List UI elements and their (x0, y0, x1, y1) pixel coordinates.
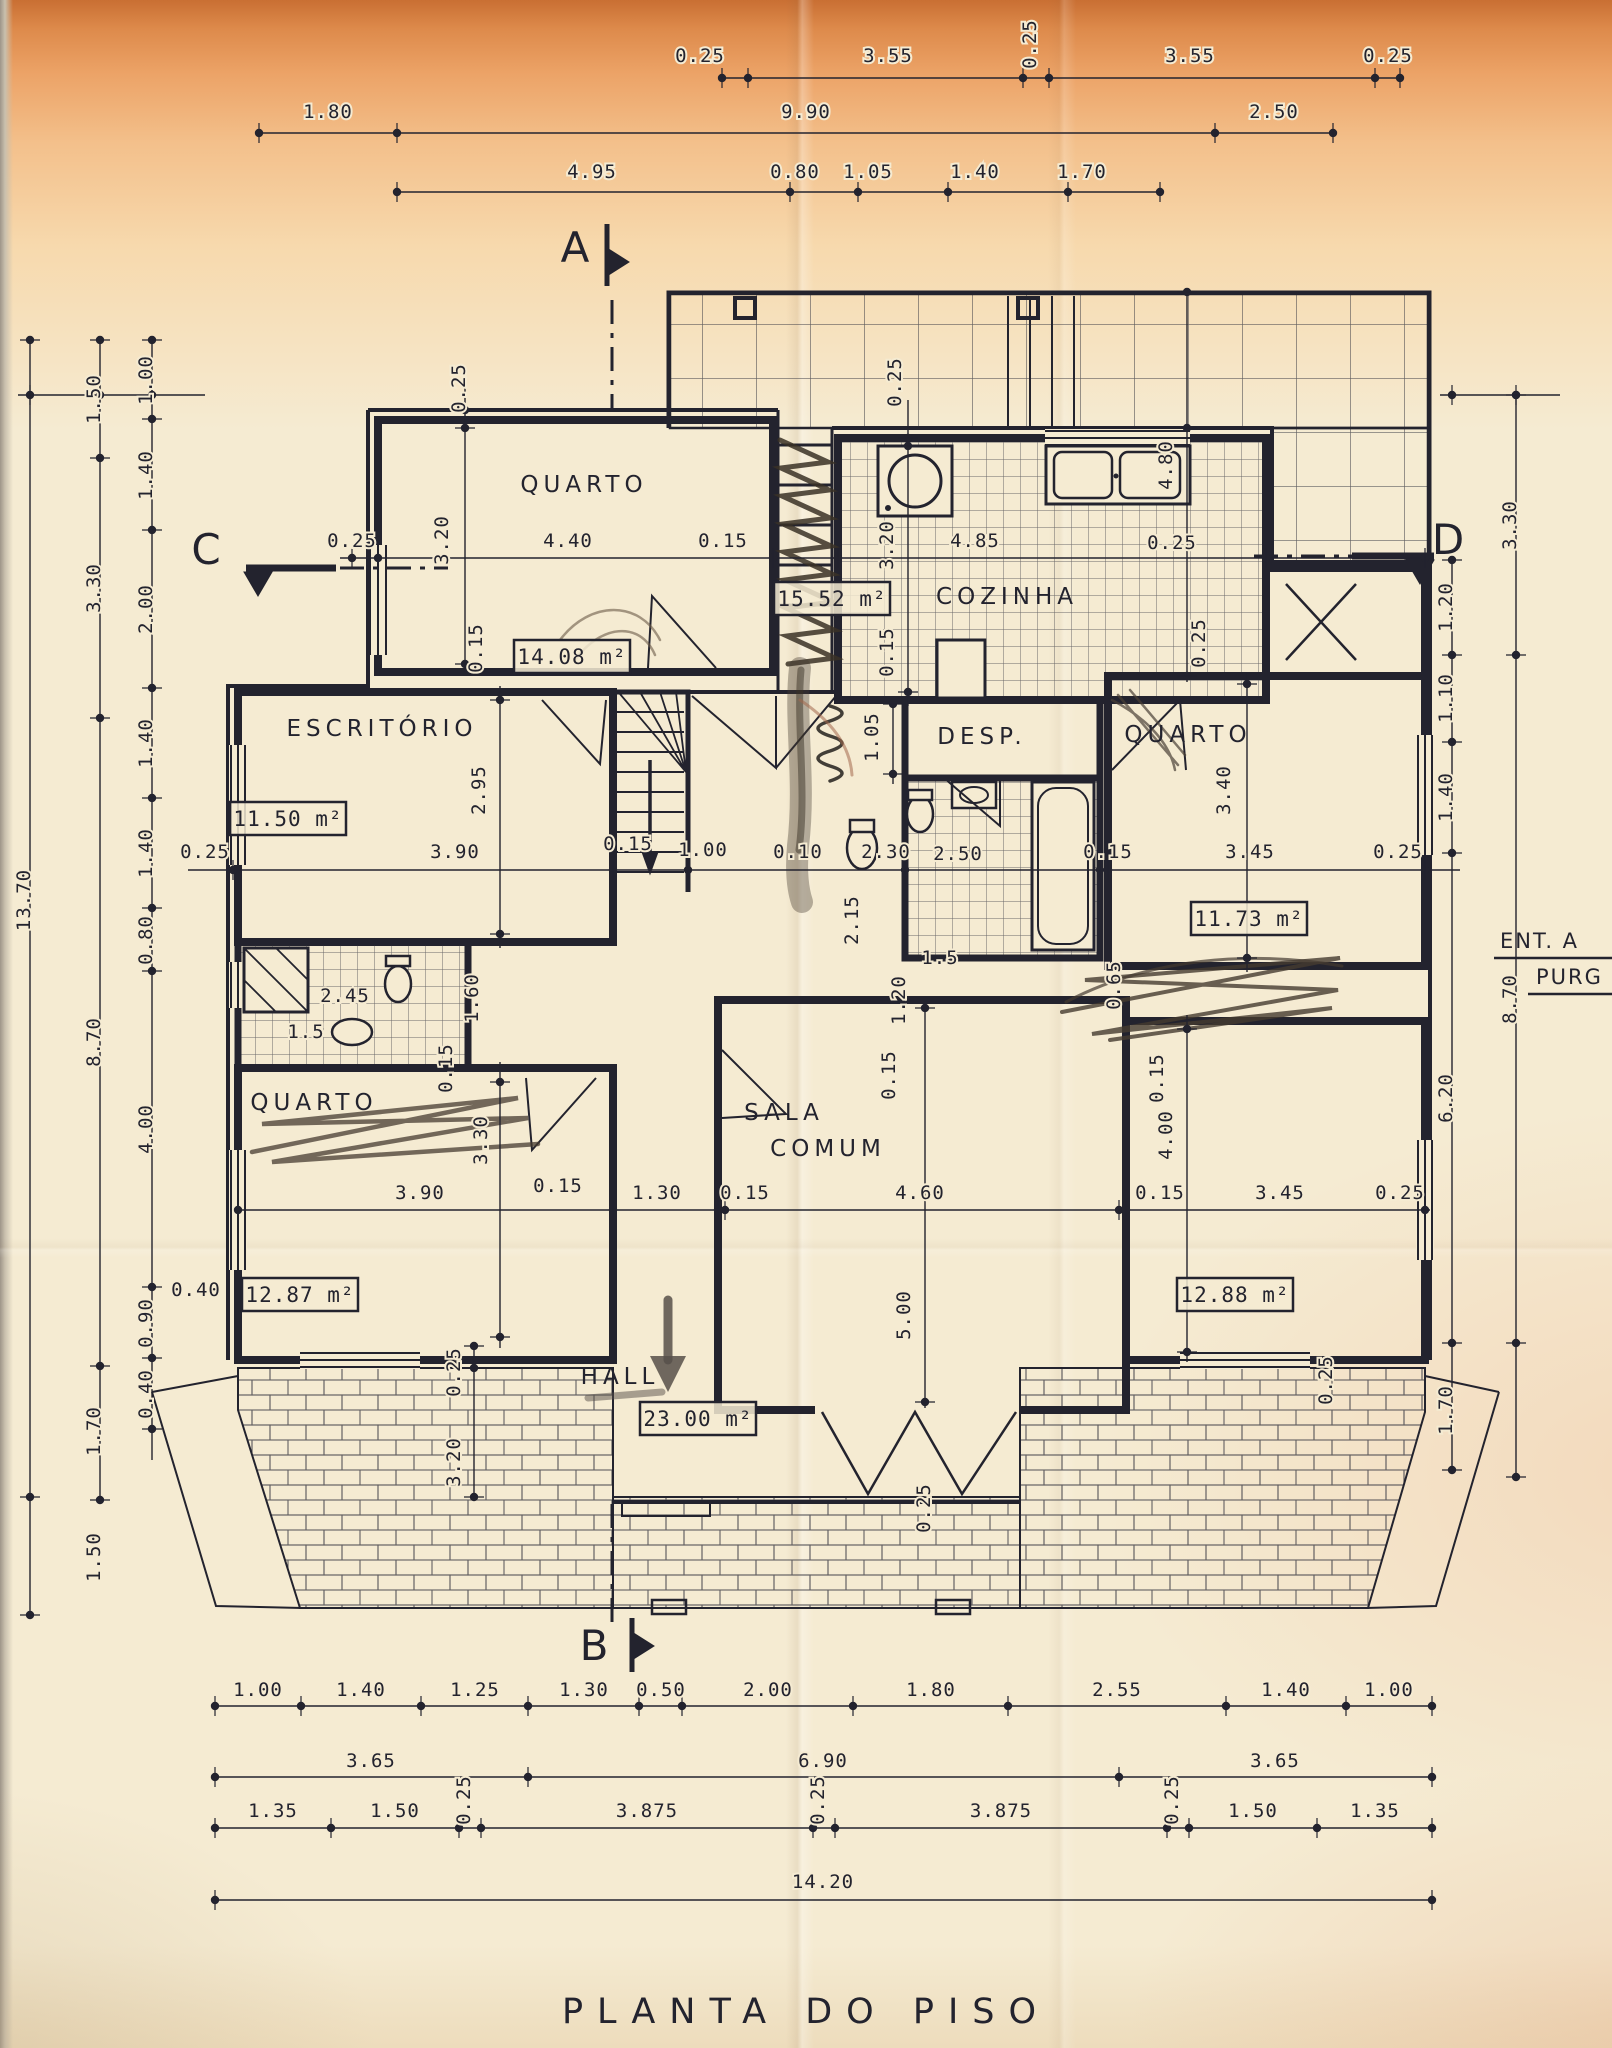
dim-label: 0.25 (1373, 841, 1423, 863)
dim-label-rotated: 3.30 (1499, 500, 1521, 550)
dim-label-rotated: 0.15 (435, 1043, 457, 1093)
dim-label-rotated: 2.00 (135, 584, 157, 634)
dim-label: 0.10 (773, 841, 823, 863)
dim-label: 1.70 (1057, 161, 1107, 183)
dim-label: 0.40 (171, 1279, 221, 1301)
dim-label-rotated: 0.25 (807, 1775, 829, 1825)
washbasin (332, 1019, 372, 1045)
dim-label-rotated: 0.25 (1188, 618, 1210, 668)
dim-label: 2.30 (861, 841, 911, 863)
dim-label-rotated: 4.00 (1155, 1110, 1177, 1160)
wall-ne-nook (1266, 568, 1425, 676)
dim-label-rotated: 1.60 (461, 973, 483, 1023)
dim-label: 0.50 (636, 1679, 686, 1701)
dim-label-rotated: 2.15 (841, 895, 863, 945)
water-heater-cross (1286, 584, 1356, 660)
dim-label-rotated: 0.65 (1103, 960, 1125, 1010)
dim-label-rotated: 1.70 (1435, 1385, 1457, 1435)
hatch-scribble (780, 440, 835, 664)
dim-label-rotated: 0.25 (1019, 19, 1041, 69)
dim-label: 4.85 (950, 530, 1000, 552)
dim-label-rotated: 1.40 (135, 718, 157, 768)
section-arrow-a (607, 248, 629, 276)
dim-label-rotated: 5.00 (893, 1290, 915, 1340)
area-label: 12.88 m² (1180, 1283, 1289, 1307)
dim-label: 1.50 (370, 1800, 420, 1822)
dim-label: 3.45 (1255, 1182, 1305, 1204)
dim-label-rotated: 1.10 (1435, 673, 1457, 723)
dim-label: 9.90 (781, 101, 831, 123)
dim-label-rotated: 1.20 (1435, 582, 1457, 632)
kitchen-counter (937, 640, 985, 698)
floor-plan-drawing: 0.253.553.550.251.809.902.504.950.801.05… (0, 0, 1612, 2048)
dim-label: 3.65 (346, 1750, 396, 1772)
room-label-quarto: QUARTO (250, 1090, 377, 1116)
dim-label: 14.20 (792, 1871, 854, 1893)
dim-label-rotated: 3.20 (443, 1437, 465, 1487)
room-label-desp: DESP. (937, 724, 1026, 750)
dim-label: 0.15 (603, 833, 653, 855)
dim-label: 0.15 (720, 1182, 770, 1204)
dim-label-rotated: 0.25 (1315, 1355, 1337, 1405)
bathtub (1032, 782, 1094, 950)
section-marker-b: B (580, 1621, 609, 1670)
dim-label: 0.15 (698, 530, 748, 552)
area-label: 11.50 m² (233, 807, 342, 831)
dim-label: 1.5 (921, 947, 958, 969)
dim-label-rotated: 0.25 (913, 1483, 935, 1533)
room-label-comum: COMUM (770, 1136, 886, 1162)
dim-label: 3.55 (1165, 45, 1215, 67)
room-label-escritrio: ESCRITÓRIO (287, 714, 478, 742)
dim-label: 1.50 (1228, 1800, 1278, 1822)
dim-label: 1.05 (843, 161, 893, 183)
dim-label-rotated: 2.95 (468, 765, 490, 815)
dim-label: 0.25 (1147, 532, 1197, 554)
drawing-title: PLANTA DO PISO (0, 1992, 1612, 2032)
dim-label: 3.65 (1250, 1750, 1300, 1772)
dim-label-rotated: 1.20 (888, 975, 910, 1025)
dim-label-rotated: 0.40 (135, 1369, 157, 1419)
dim-label-rotated: 1.00 (135, 355, 157, 405)
toilet (385, 966, 411, 1002)
side-note: PURG (1536, 965, 1603, 989)
dim-label-rotated: 6.20 (1435, 1073, 1457, 1123)
dim-label-rotated: 0.25 (448, 363, 470, 413)
dim-label: 2.50 (933, 843, 983, 865)
dim-label: 1.40 (336, 1679, 386, 1701)
dim-label-rotated: 1.70 (83, 1406, 105, 1456)
dim-label-rotated: 3.30 (83, 563, 105, 613)
dim-label: 3.875 (970, 1800, 1032, 1822)
dim-label: 3.45 (1225, 841, 1275, 863)
dim-label: 2.00 (743, 1679, 793, 1701)
dim-label: 0.25 (1375, 1182, 1425, 1204)
dim-label-rotated: 0.25 (1161, 1775, 1183, 1825)
dim-label-rotated: 0.80 (135, 915, 157, 965)
side-note: ENT. A (1500, 929, 1579, 953)
dim-label: 0.25 (675, 45, 725, 67)
dim-label: 0.80 (770, 161, 820, 183)
section-arrow-c (244, 572, 272, 596)
dim-label: 1.80 (906, 1679, 956, 1701)
dim-label: 0.25 (1363, 45, 1413, 67)
dim-label-rotated: 1.40 (135, 450, 157, 500)
dim-label: 3.55 (863, 45, 913, 67)
dim-label: 0.15 (533, 1175, 583, 1197)
dim-label: 1.30 (632, 1182, 682, 1204)
dim-label-rotated: 0.25 (884, 357, 906, 407)
dim-label-rotated: 1.40 (135, 828, 157, 878)
area-label: 15.52 m² (777, 587, 886, 611)
dim-label-rotated: 3.20 (876, 520, 898, 570)
dim-label: 1.40 (950, 161, 1000, 183)
dim-label-rotated: 3.30 (470, 1115, 492, 1165)
dim-label: 2.45 (320, 985, 370, 1007)
dim-label: 1.80 (303, 101, 353, 123)
dim-label-rotated: 0.15 (1146, 1053, 1168, 1103)
scanned-floor-plan-sheet: 0.253.553.550.251.809.902.504.950.801.05… (0, 0, 1612, 2048)
dim-label: 6.90 (798, 1750, 848, 1772)
bidet (907, 796, 933, 832)
dim-label-rotated: 3.40 (1213, 765, 1235, 815)
brick-terraces-bottom (152, 1368, 1499, 1614)
dim-label-rotated: 0.90 (135, 1298, 157, 1348)
dim-label-rotated: 0.25 (453, 1775, 475, 1825)
dim-label: 3.90 (430, 841, 480, 863)
dim-label: 0.15 (1135, 1182, 1185, 1204)
area-label: 14.08 m² (517, 645, 626, 669)
dim-label: 1.25 (450, 1679, 500, 1701)
dim-label-rotated: 0.15 (876, 627, 898, 677)
dim-label: 1.00 (233, 1679, 283, 1701)
room-label-hall: HALL (581, 1364, 660, 1390)
section-arrow-b (632, 1632, 654, 1660)
section-marker-c: C (191, 525, 220, 574)
dim-label: 2.55 (1092, 1679, 1142, 1701)
dim-label: 1.00 (678, 839, 728, 861)
dim-label: 2.50 (1249, 101, 1299, 123)
dim-label: 4.60 (895, 1182, 945, 1204)
dim-label-rotated: 13.70 (13, 869, 35, 931)
dim-label: 0.15 (1083, 841, 1133, 863)
dim-label-rotated: 8.70 (83, 1017, 105, 1067)
section-marker-a: A (561, 223, 590, 272)
room-label-quarto: QUARTO (1124, 722, 1251, 748)
dim-label: 1.35 (248, 1800, 298, 1822)
dim-label: 1.30 (559, 1679, 609, 1701)
dim-label-rotated: 0.15 (465, 623, 487, 673)
room-label-quarto: QUARTO (520, 472, 647, 498)
dim-label: 4.95 (567, 161, 617, 183)
dim-label: 3.90 (395, 1182, 445, 1204)
dim-label: 1.35 (1350, 1800, 1400, 1822)
area-label: 12.87 m² (245, 1283, 354, 1307)
area-label: 23.00 m² (643, 1407, 752, 1431)
dim-label: 3.875 (616, 1800, 678, 1822)
dim-label-rotated: 4.80 (1155, 440, 1177, 490)
area-label: 11.73 m² (1194, 907, 1303, 931)
wall-sala-comum (718, 1000, 1126, 1410)
dim-label-rotated: 0.25 (443, 1347, 465, 1397)
room-label-sala: SALA (744, 1100, 824, 1126)
dim-label-rotated: 0.15 (878, 1050, 900, 1100)
dim-label: 1.5 (287, 1021, 324, 1043)
dim-label-rotated: 4.00 (135, 1104, 157, 1154)
dim-label: 1.00 (1364, 1679, 1414, 1701)
dim-label: 4.40 (543, 530, 593, 552)
dim-label: 1.40 (1261, 1679, 1311, 1701)
dim-label-rotated: 1.40 (1435, 772, 1457, 822)
dim-label: 0.25 (327, 530, 377, 552)
double-door-zigzag (822, 1412, 1016, 1494)
section-marker-d: D (1432, 515, 1464, 564)
dim-label-rotated: 1.50 (83, 374, 105, 424)
dim-label-rotated: 1.50 (83, 1532, 105, 1582)
room-label-cozinha: COZINHA (936, 584, 1078, 610)
dim-label-rotated: 8.70 (1499, 974, 1521, 1024)
dim-label-rotated: 1.05 (861, 712, 883, 762)
dim-label: 0.25 (180, 841, 230, 863)
dim-label-rotated: 3.20 (431, 515, 453, 565)
